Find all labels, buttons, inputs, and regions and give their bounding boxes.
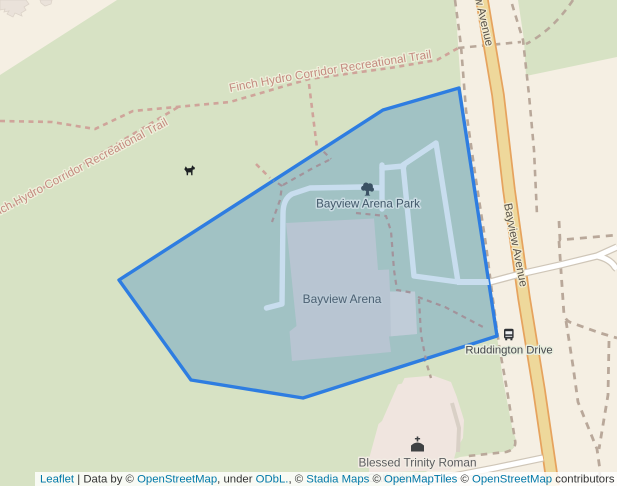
svg-text:Blessed Trinity Roman: Blessed Trinity Roman xyxy=(358,456,476,470)
svg-text:Bayview Arena: Bayview Arena xyxy=(303,292,382,306)
svg-text:Ruddington Drive: Ruddington Drive xyxy=(465,345,552,357)
svg-text:Bayview Arena Park: Bayview Arena Park xyxy=(316,198,420,211)
svg-text:Leaflet | Data by © OpenStreet: Leaflet | Data by © OpenStreetMap, under… xyxy=(40,474,615,486)
